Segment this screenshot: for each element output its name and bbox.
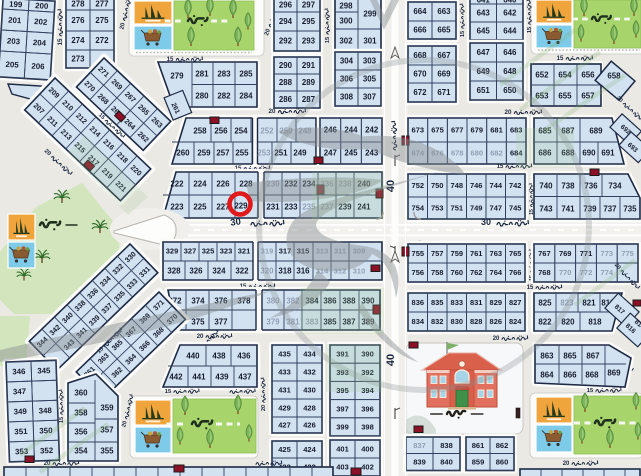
svg-text:374: 374 — [191, 297, 205, 306]
svg-text:260: 260 — [176, 149, 190, 158]
svg-text:252: 252 — [260, 127, 274, 136]
svg-text:866: 866 — [563, 371, 577, 380]
svg-text:231: 231 — [266, 203, 280, 212]
svg-text:825: 825 — [538, 299, 552, 308]
svg-text:349: 349 — [14, 407, 28, 416]
svg-text:278: 278 — [71, 0, 85, 9]
svg-text:764: 764 — [490, 268, 503, 277]
svg-text:833: 833 — [451, 298, 464, 307]
svg-text:755: 755 — [412, 249, 425, 258]
svg-text:203: 203 — [7, 36, 21, 46]
svg-text:204: 204 — [33, 38, 47, 48]
svg-text:315: 315 — [297, 247, 310, 256]
svg-text:670: 670 — [413, 70, 427, 79]
svg-text:15: 15 — [527, 27, 533, 33]
svg-text:298: 298 — [339, 2, 353, 11]
svg-text:326: 326 — [189, 267, 203, 276]
svg-text:295: 295 — [302, 17, 316, 26]
svg-text:246: 246 — [324, 126, 338, 135]
svg-text:375: 375 — [191, 318, 205, 327]
svg-text:233: 233 — [284, 203, 298, 212]
svg-text:379: 379 — [266, 318, 280, 327]
svg-text:824: 824 — [509, 317, 522, 326]
svg-text:302: 302 — [339, 37, 353, 46]
svg-text:292: 292 — [279, 37, 293, 46]
svg-text:396: 396 — [361, 404, 374, 413]
svg-text:351: 351 — [14, 427, 28, 436]
svg-text:436: 436 — [237, 352, 251, 361]
svg-text:20: 20 — [563, 461, 570, 467]
svg-text:304: 304 — [340, 57, 354, 66]
svg-text:671: 671 — [437, 88, 451, 97]
svg-text:303: 303 — [363, 57, 377, 66]
svg-text:676: 676 — [431, 149, 444, 158]
svg-text:275: 275 — [95, 16, 109, 25]
svg-text:225: 225 — [193, 203, 207, 212]
svg-text:760: 760 — [451, 268, 464, 277]
svg-text:279: 279 — [170, 72, 184, 81]
svg-text:863: 863 — [540, 352, 554, 361]
svg-text:734: 734 — [608, 182, 622, 191]
svg-text:30: 30 — [230, 216, 242, 228]
svg-text:438: 438 — [212, 352, 226, 361]
svg-text:437: 437 — [238, 373, 252, 382]
svg-text:647: 647 — [477, 48, 491, 57]
svg-text:834: 834 — [412, 317, 425, 326]
svg-text:277: 277 — [95, 0, 109, 9]
svg-text:205: 205 — [5, 60, 19, 70]
svg-text:399: 399 — [336, 423, 349, 432]
svg-text:751: 751 — [451, 204, 464, 213]
svg-text:15: 15 — [497, 164, 504, 170]
svg-text:276: 276 — [71, 16, 85, 25]
svg-text:400: 400 — [361, 445, 374, 454]
svg-text:20: 20 — [493, 336, 500, 342]
svg-text:822: 822 — [538, 318, 552, 327]
svg-text:425: 425 — [278, 445, 291, 454]
svg-text:767: 767 — [538, 249, 551, 258]
svg-text:311: 311 — [334, 247, 346, 256]
svg-text:742: 742 — [509, 181, 522, 190]
svg-text:837: 837 — [413, 441, 426, 450]
svg-text:329: 329 — [166, 247, 179, 256]
svg-text:754: 754 — [412, 204, 425, 213]
svg-text:644: 644 — [503, 27, 517, 36]
svg-text:245: 245 — [344, 149, 358, 158]
svg-text:378: 378 — [237, 297, 251, 306]
svg-text:299: 299 — [363, 10, 377, 19]
svg-text:829: 829 — [490, 298, 503, 307]
svg-text:675: 675 — [431, 126, 444, 135]
svg-text:290: 290 — [279, 61, 293, 70]
svg-text:865: 865 — [563, 352, 577, 361]
svg-text:761: 761 — [470, 249, 483, 258]
svg-text:228: 228 — [239, 180, 253, 189]
svg-text:427: 427 — [278, 421, 291, 430]
svg-text:756: 756 — [412, 268, 425, 277]
svg-text:289: 289 — [302, 78, 316, 87]
svg-text:403: 403 — [336, 463, 349, 472]
svg-text:642: 642 — [503, 9, 517, 18]
svg-text:424: 424 — [303, 445, 316, 454]
svg-text:243: 243 — [365, 149, 379, 158]
svg-text:652: 652 — [535, 71, 549, 80]
svg-text:15: 15 — [460, 31, 466, 37]
svg-text:828: 828 — [470, 317, 483, 326]
svg-text:300: 300 — [339, 17, 353, 26]
svg-text:768: 768 — [538, 268, 551, 277]
svg-text:226: 226 — [216, 180, 230, 189]
svg-text:646: 646 — [503, 48, 517, 57]
svg-text:679: 679 — [471, 126, 484, 135]
svg-text:347: 347 — [13, 387, 27, 396]
svg-text:655: 655 — [558, 92, 572, 101]
svg-text:297: 297 — [302, 1, 316, 10]
svg-text:288: 288 — [279, 78, 293, 87]
svg-text:30: 30 — [481, 217, 491, 227]
svg-text:868: 868 — [585, 371, 599, 380]
svg-text:327: 327 — [184, 247, 197, 256]
svg-text:429: 429 — [278, 404, 291, 413]
svg-text:293: 293 — [302, 37, 316, 46]
svg-text:360: 360 — [74, 389, 88, 398]
svg-text:398: 398 — [361, 423, 374, 432]
svg-text:352: 352 — [40, 446, 54, 455]
svg-text:321: 321 — [238, 247, 251, 256]
svg-text:274: 274 — [71, 36, 85, 45]
svg-text:820: 820 — [561, 318, 575, 327]
svg-text:836: 836 — [412, 298, 425, 307]
svg-text:255: 255 — [235, 149, 249, 158]
svg-text:763: 763 — [490, 249, 503, 258]
svg-text:294: 294 — [279, 17, 293, 26]
svg-text:15: 15 — [165, 389, 172, 395]
svg-text:247: 247 — [324, 149, 338, 158]
svg-text:669: 669 — [437, 70, 451, 79]
svg-text:312: 312 — [334, 267, 347, 276]
svg-text:672: 672 — [413, 88, 427, 97]
svg-text:753: 753 — [431, 204, 444, 213]
svg-text:832: 832 — [431, 317, 444, 326]
svg-text:678: 678 — [451, 149, 464, 158]
svg-text:202: 202 — [34, 17, 48, 27]
svg-text:838: 838 — [440, 441, 453, 450]
svg-text:328: 328 — [167, 267, 181, 276]
svg-text:355: 355 — [100, 447, 114, 456]
svg-text:645: 645 — [477, 27, 491, 36]
svg-text:402: 402 — [361, 463, 374, 472]
svg-text:15: 15 — [587, 388, 594, 394]
svg-text:861: 861 — [472, 441, 485, 450]
svg-text:308: 308 — [340, 93, 354, 102]
svg-text:643: 643 — [477, 9, 491, 18]
svg-text:307: 307 — [363, 93, 377, 102]
svg-text:401: 401 — [336, 445, 349, 454]
svg-text:229: 229 — [234, 202, 248, 211]
svg-text:291: 291 — [302, 61, 316, 70]
svg-text:677: 677 — [451, 126, 464, 135]
svg-text:666: 666 — [413, 26, 427, 35]
svg-text:835: 835 — [431, 298, 444, 307]
svg-text:757: 757 — [431, 249, 444, 258]
svg-text:428: 428 — [303, 404, 316, 413]
svg-text:40: 40 — [385, 180, 397, 192]
svg-text:747: 747 — [490, 204, 503, 213]
svg-text:232: 232 — [284, 180, 298, 189]
svg-text:651: 651 — [477, 86, 491, 95]
svg-text:656: 656 — [581, 71, 595, 80]
svg-text:770: 770 — [559, 268, 572, 277]
svg-text:254: 254 — [234, 127, 248, 136]
svg-text:258: 258 — [193, 127, 207, 136]
svg-text:860: 860 — [496, 458, 509, 467]
svg-text:682: 682 — [490, 149, 503, 158]
svg-text:769: 769 — [559, 249, 572, 258]
svg-text:283: 283 — [217, 70, 231, 79]
svg-text:15: 15 — [325, 36, 331, 43]
svg-text:253: 253 — [257, 149, 271, 158]
svg-text:325: 325 — [202, 247, 215, 256]
svg-text:273: 273 — [71, 55, 85, 64]
svg-text:818: 818 — [588, 318, 602, 327]
svg-text:440: 440 — [186, 352, 200, 361]
svg-text:826: 826 — [490, 317, 503, 326]
svg-text:356: 356 — [74, 428, 88, 437]
svg-text:199: 199 — [9, 0, 23, 9]
svg-text:40: 40 — [385, 354, 397, 366]
svg-text:435: 435 — [278, 350, 291, 359]
svg-text:840: 840 — [440, 458, 453, 467]
svg-text:681: 681 — [490, 126, 503, 135]
svg-text:765: 765 — [509, 249, 522, 258]
svg-text:743: 743 — [539, 205, 553, 214]
svg-text:318: 318 — [278, 267, 292, 276]
svg-text:689: 689 — [589, 127, 603, 136]
svg-text:222: 222 — [170, 180, 184, 189]
svg-text:359: 359 — [100, 404, 114, 413]
svg-text:869: 869 — [607, 369, 621, 378]
svg-text:773: 773 — [601, 249, 614, 258]
svg-text:230: 230 — [266, 180, 280, 189]
svg-text:317: 317 — [279, 247, 292, 256]
svg-text:15: 15 — [529, 209, 535, 215]
svg-text:201: 201 — [8, 15, 22, 25]
svg-text:827: 827 — [509, 298, 522, 307]
svg-text:200: 200 — [35, 1, 49, 11]
svg-text:442: 442 — [169, 373, 183, 382]
svg-text:314: 314 — [316, 267, 329, 276]
svg-text:750: 750 — [431, 181, 444, 190]
svg-text:691: 691 — [601, 149, 615, 158]
svg-text:296: 296 — [279, 1, 293, 10]
svg-text:431: 431 — [278, 386, 291, 395]
svg-text:309: 309 — [353, 247, 366, 256]
svg-text:376: 376 — [214, 297, 228, 306]
svg-text:305: 305 — [363, 75, 377, 84]
svg-text:433: 433 — [278, 368, 291, 377]
svg-text:758: 758 — [431, 268, 444, 277]
svg-text:322: 322 — [235, 267, 249, 276]
svg-text:259: 259 — [197, 149, 211, 158]
svg-text:775: 775 — [621, 249, 634, 258]
svg-text:348: 348 — [38, 406, 52, 415]
svg-text:762: 762 — [470, 268, 483, 277]
svg-text:346: 346 — [12, 367, 26, 376]
svg-text:382: 382 — [286, 297, 300, 306]
svg-text:690: 690 — [582, 149, 596, 158]
svg-text:674: 674 — [412, 149, 425, 158]
svg-text:752: 752 — [412, 181, 425, 190]
svg-text:377: 377 — [214, 318, 228, 327]
svg-text:286: 286 — [279, 95, 293, 104]
svg-text:223: 223 — [170, 203, 184, 212]
svg-text:324: 324 — [212, 267, 226, 276]
svg-text:249: 249 — [293, 149, 307, 158]
svg-text:15: 15 — [167, 57, 174, 63]
svg-text:224: 224 — [193, 180, 207, 189]
svg-text:665: 665 — [437, 26, 451, 35]
svg-text:738: 738 — [561, 182, 575, 191]
svg-text:244: 244 — [344, 126, 358, 135]
svg-text:748: 748 — [451, 181, 464, 190]
svg-text:323: 323 — [220, 247, 233, 256]
svg-text:737: 737 — [603, 205, 617, 214]
svg-text:839: 839 — [413, 458, 426, 467]
svg-text:746: 746 — [470, 181, 483, 190]
svg-text:206: 206 — [31, 61, 45, 71]
svg-text:749: 749 — [470, 204, 483, 213]
svg-text:345: 345 — [37, 366, 51, 375]
svg-text:281: 281 — [195, 70, 209, 79]
svg-text:867: 867 — [586, 352, 600, 361]
svg-text:439: 439 — [215, 373, 229, 382]
svg-text:864: 864 — [540, 371, 554, 380]
svg-text:397: 397 — [336, 404, 349, 413]
svg-text:310: 310 — [353, 267, 366, 276]
svg-text:680: 680 — [471, 149, 484, 158]
svg-text:432: 432 — [303, 368, 316, 377]
svg-text:830: 830 — [451, 317, 464, 326]
svg-text:831: 831 — [470, 298, 483, 307]
svg-text:441: 441 — [192, 373, 206, 382]
svg-text:859: 859 — [472, 458, 485, 467]
svg-text:282: 282 — [217, 92, 231, 101]
svg-text:759: 759 — [451, 249, 464, 258]
svg-text:430: 430 — [303, 386, 316, 395]
svg-text:256: 256 — [214, 127, 228, 136]
svg-text:280: 280 — [195, 92, 209, 101]
svg-text:15: 15 — [58, 38, 64, 45]
svg-text:313: 313 — [316, 247, 329, 256]
svg-text:257: 257 — [216, 149, 230, 158]
svg-text:20: 20 — [261, 405, 267, 411]
svg-text:316: 316 — [296, 267, 310, 276]
svg-text:766: 766 — [509, 268, 522, 277]
svg-text:242: 242 — [365, 126, 379, 135]
svg-text:673: 673 — [412, 126, 425, 135]
svg-text:285: 285 — [239, 70, 253, 79]
svg-text:745: 745 — [509, 204, 522, 213]
svg-text:663: 663 — [437, 7, 451, 16]
svg-text:301: 301 — [363, 37, 377, 46]
svg-text:740: 740 — [539, 182, 553, 191]
svg-text:284: 284 — [239, 92, 253, 101]
svg-text:426: 426 — [303, 421, 316, 430]
svg-text:744: 744 — [490, 181, 503, 190]
svg-text:862: 862 — [496, 441, 509, 450]
svg-text:664: 664 — [413, 7, 427, 16]
svg-text:20: 20 — [197, 334, 204, 340]
svg-text:20: 20 — [269, 108, 276, 115]
svg-text:741: 741 — [561, 205, 575, 214]
svg-text:248: 248 — [298, 127, 312, 136]
svg-text:272: 272 — [95, 36, 109, 45]
svg-text:735: 735 — [623, 205, 637, 214]
